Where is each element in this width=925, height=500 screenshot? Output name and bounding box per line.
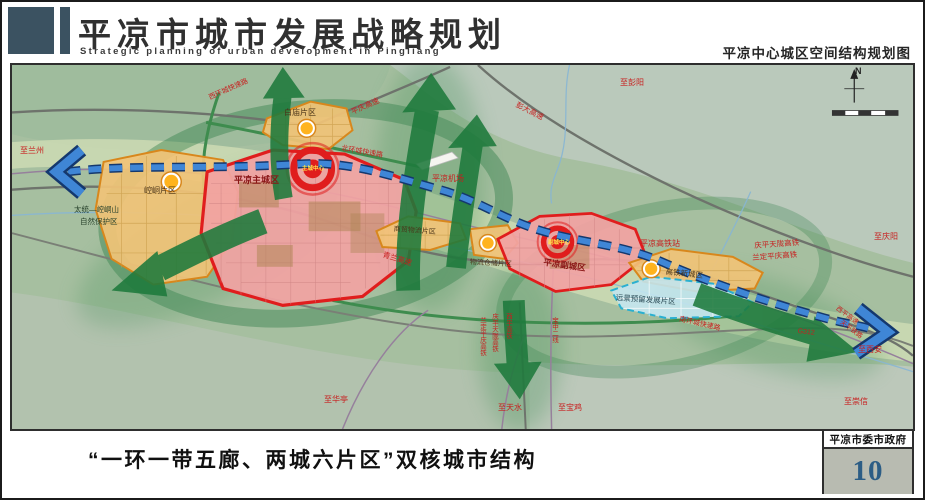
label-reserved-district: 远景预留发展片区 [615, 294, 675, 306]
label-airport: 平凉机场 [432, 175, 464, 183]
label-hsr-station: 平凉高铁站 [640, 240, 680, 248]
publisher-box: 平凉市委市政府 10 [822, 431, 914, 494]
page-subtitle-en: Strategic planning of urban development … [80, 46, 441, 57]
label-rail-vertical-2: 庆平天陇高铁 [490, 313, 497, 352]
compass-n-label: N [855, 67, 862, 76]
label-rail-vertical-3: 西平高铁 [504, 313, 511, 339]
label-g312: G312 [797, 328, 815, 337]
label-hsr-newtown: 高铁新城区 [665, 268, 703, 279]
structure-caption: “一环一带五廊、两城六片区”双核城市结构 [88, 444, 537, 474]
publisher-name: 平凉市委市政府 [824, 431, 912, 449]
label-to-tianshui: 至天水 [498, 404, 522, 412]
label-qinglan-expressway: 青兰高速 [382, 251, 413, 267]
label-nature-reserve-line1: 太统—崆峒山 [74, 206, 119, 214]
label-to-huating: 至华亭 [324, 396, 348, 404]
label-to-chongxin: 至崇信 [844, 398, 868, 406]
label-hsr-line-1: 庆平天陇高铁 [754, 239, 799, 250]
label-main-core: 主城中心 [302, 167, 324, 173]
label-main-city: 平凉主城区 [234, 176, 279, 185]
page-number: 10 [824, 449, 912, 494]
map-canvas: 至兰州西环城快速路平庆高速至彭阳彭大高速至庆阳白庙片区北环城快速路平凉机场平凉主… [10, 63, 915, 431]
label-sub-city: 平凉副城区 [543, 258, 586, 272]
label-sub-core: 副城中心 [548, 241, 570, 247]
map-title: 平凉中心城区空间结构规划图 [723, 42, 912, 62]
label-rail-vertical-1: 兰定平庆高铁 [478, 317, 485, 356]
label-pengda-expressway: 彭大高速 [515, 101, 545, 121]
label-to-pengyang: 至彭阳 [620, 79, 644, 87]
label-nature-reserve-line2: 自然保护区 [80, 218, 118, 226]
label-baimiao-district: 白庙片区 [284, 109, 316, 117]
label-north-ring-road: 北环城快速路 [341, 145, 384, 159]
label-warehouse-district: 物流仓储片区 [470, 259, 512, 268]
label-to-xian: 至西安 [858, 346, 882, 354]
label-hsr-line-2: 兰定平庆高铁 [752, 251, 797, 262]
label-kongtong-district: 崆峒片区 [144, 187, 176, 195]
header-accent-square [8, 7, 54, 54]
label-west-ring-road: 西环城快速路 [208, 78, 249, 101]
label-south-ring-road: 南环城快速路 [678, 316, 720, 332]
label-to-baoji: 至宝鸡 [558, 404, 582, 412]
header-accent-bar [60, 7, 70, 54]
label-pingqing-expressway: 平庆高速 [350, 97, 380, 116]
label-baozhong-railway: 宝中二线 [550, 317, 557, 343]
map-labels: 至兰州西环城快速路平庆高速至彭阳彭大高速至庆阳白庙片区北环城快速路平凉机场平凉主… [12, 65, 913, 429]
label-to-lanzhou: 至兰州 [20, 147, 44, 155]
label-trade-logistics-district: 商贸物流片区 [394, 226, 436, 236]
label-to-qingyang: 至庆阳 [874, 233, 898, 241]
